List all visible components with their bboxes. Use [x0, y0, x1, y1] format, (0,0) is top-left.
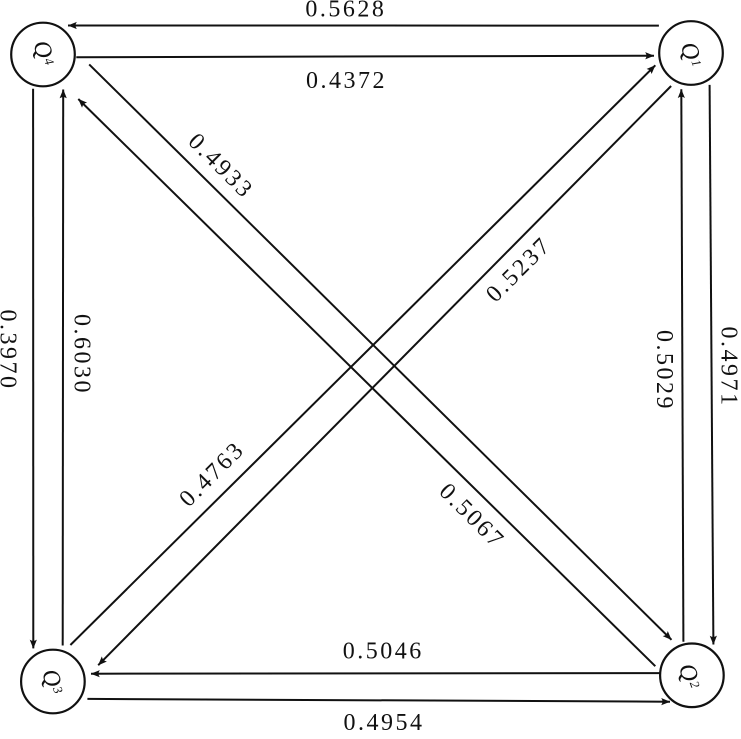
svg-text:0.5029: 0.5029	[651, 330, 677, 411]
svg-text:0.3970: 0.3970	[0, 310, 21, 391]
svg-text:0.5628: 0.5628	[305, 0, 386, 22]
svg-text:0.4372: 0.4372	[306, 68, 387, 94]
svg-text:0.4971: 0.4971	[716, 327, 741, 408]
svg-text:0.6030: 0.6030	[69, 314, 95, 395]
svg-text:0.4954: 0.4954	[344, 710, 425, 734]
svg-text:0.5046: 0.5046	[343, 639, 424, 665]
